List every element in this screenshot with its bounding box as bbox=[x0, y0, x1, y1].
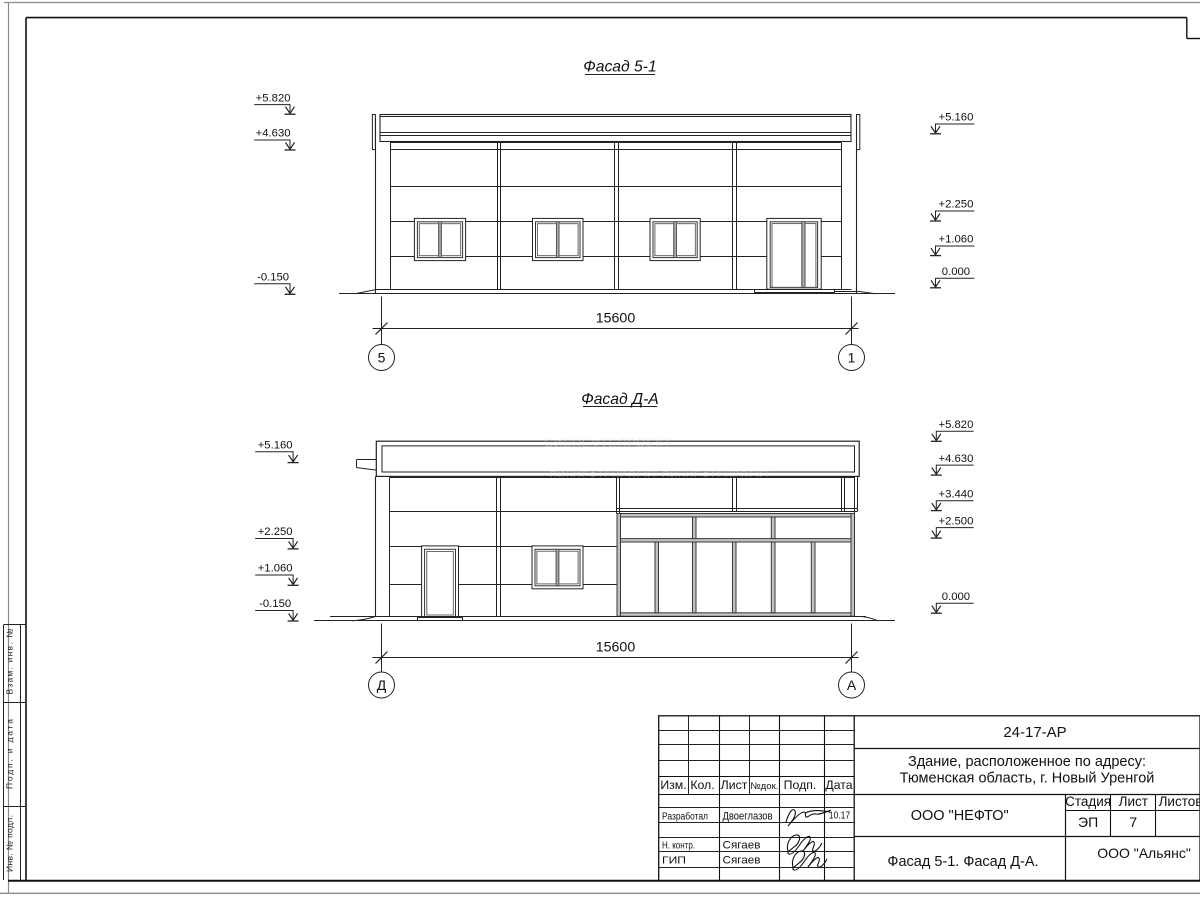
svg-text:Фасад 5-1. Фасад Д-А.: Фасад 5-1. Фасад Д-А. bbox=[887, 854, 1038, 870]
svg-text:+5.820: +5.820 bbox=[256, 92, 291, 104]
svg-text:ГИП: ГИП bbox=[662, 856, 686, 867]
svg-text:Дата: Дата bbox=[825, 778, 852, 792]
svg-text:А: А bbox=[847, 677, 857, 693]
svg-text:+5.820: +5.820 bbox=[939, 419, 974, 431]
svg-text:+5.160: +5.160 bbox=[939, 112, 974, 124]
svg-text:СИБНЕФТЕПРОЕКТ: СИБНЕФТЕПРОЕКТ bbox=[544, 436, 672, 450]
svg-text:-0.150: -0.150 bbox=[257, 272, 289, 284]
svg-text:+2.500: +2.500 bbox=[939, 515, 974, 527]
svg-text:Подп. и дата: Подп. и дата bbox=[5, 719, 15, 789]
svg-text:5: 5 bbox=[378, 350, 386, 366]
svg-text:Подп.: Подп. bbox=[784, 778, 817, 792]
svg-text:+1.060: +1.060 bbox=[258, 563, 293, 575]
svg-text:15600: 15600 bbox=[596, 311, 636, 327]
svg-text:Лист: Лист bbox=[721, 778, 748, 792]
svg-text:24-17-АР: 24-17-АР bbox=[1003, 724, 1066, 741]
svg-text:-0.150: -0.150 bbox=[259, 598, 291, 610]
svg-text:1: 1 bbox=[848, 350, 856, 366]
svg-text:Фасад Д-А: Фасад Д-А bbox=[581, 391, 659, 408]
svg-text:+4.630: +4.630 bbox=[256, 128, 291, 140]
svg-text:Двоеглазов: Двоеглазов bbox=[723, 811, 773, 823]
svg-text:+2.250: +2.250 bbox=[258, 526, 293, 538]
svg-text:Здание, расположенное по адрес: Здание, расположенное по адресу: bbox=[908, 754, 1146, 770]
svg-text:0.000: 0.000 bbox=[942, 266, 970, 278]
svg-text:Инв. № подл.: Инв. № подл. bbox=[5, 815, 15, 872]
svg-text:ООО "НЕФТО": ООО "НЕФТО" bbox=[911, 808, 1009, 824]
svg-text:+2.250: +2.250 bbox=[939, 199, 974, 211]
svg-text:Д: Д bbox=[377, 677, 387, 693]
svg-text:Стадия: Стадия bbox=[1065, 794, 1111, 809]
svg-text:10.17: 10.17 bbox=[829, 809, 851, 821]
svg-text:7: 7 bbox=[1129, 814, 1137, 830]
svg-text:Взам. инв. №: Взам. инв. № bbox=[5, 629, 15, 695]
svg-text:Сягаев: Сягаев bbox=[723, 855, 761, 867]
svg-text:ООО "Альянс": ООО "Альянс" bbox=[1097, 845, 1191, 861]
svg-text:+4.630: +4.630 bbox=[939, 453, 974, 465]
svg-text:+5.160: +5.160 bbox=[258, 439, 293, 451]
svg-text:Тюменская область, г. Новый Ур: Тюменская область, г. Новый Уренгой bbox=[900, 771, 1155, 787]
svg-text:СИБНЕФТЕПРОЕКТ СИБНЕФТЕПРОЕКТ: СИБНЕФТЕПРОЕКТ СИБНЕФТЕПРОЕКТ bbox=[549, 470, 770, 481]
svg-text:Разработал: Разработал bbox=[662, 811, 708, 823]
svg-text:Кол.: Кол. bbox=[690, 778, 714, 792]
svg-text:+3.440: +3.440 bbox=[939, 489, 974, 501]
svg-text:ЭП: ЭП bbox=[1078, 814, 1098, 830]
svg-text:Листов: Листов bbox=[1159, 794, 1200, 809]
svg-text:Фасад 5-1: Фасад 5-1 bbox=[583, 59, 656, 76]
svg-text:+1.060: +1.060 bbox=[939, 234, 974, 246]
svg-text:Н. контр.: Н. контр. bbox=[662, 841, 695, 852]
svg-text:0.000: 0.000 bbox=[942, 591, 970, 603]
svg-text:Лист: Лист bbox=[1119, 794, 1148, 809]
svg-text:Сягаев: Сягаев bbox=[723, 840, 761, 852]
svg-text:15600: 15600 bbox=[596, 640, 636, 656]
svg-text:№док.: №док. bbox=[750, 781, 778, 792]
svg-text:Изм.: Изм. bbox=[660, 778, 686, 792]
